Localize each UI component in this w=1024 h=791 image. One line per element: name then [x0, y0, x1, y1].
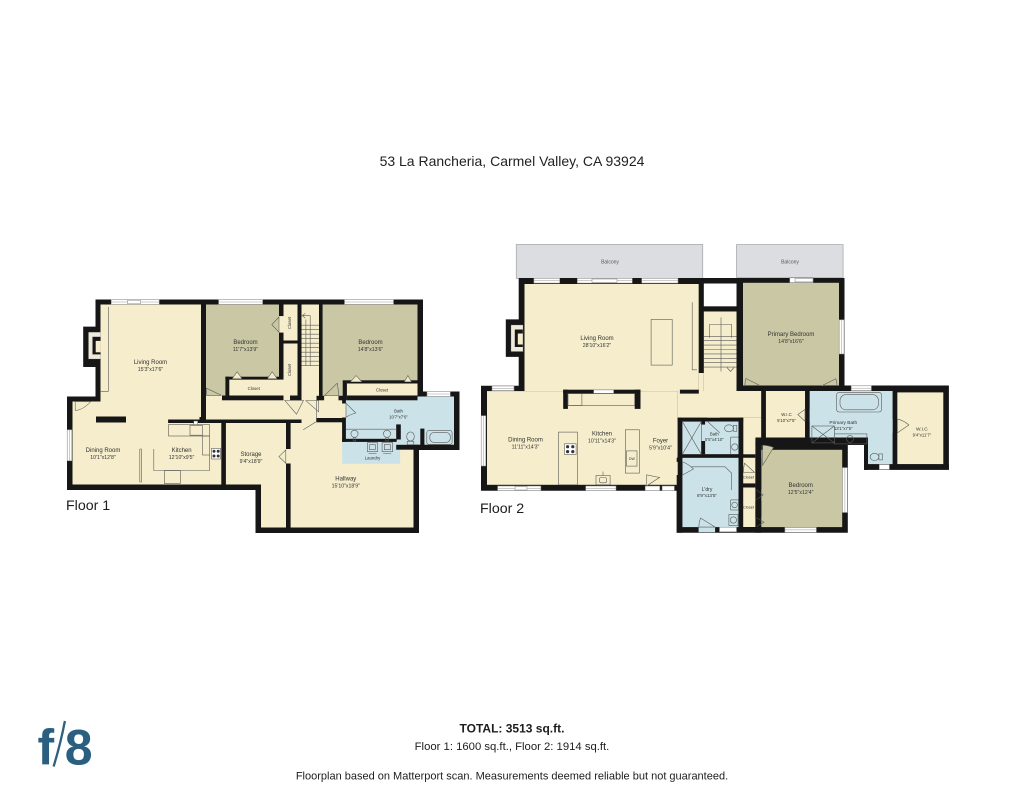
svg-text:Bath: Bath	[710, 432, 719, 437]
svg-text:Closet: Closet	[248, 386, 261, 391]
svg-text:5'10"x7'5": 5'10"x7'5"	[777, 418, 796, 423]
svg-text:Closet: Closet	[287, 316, 292, 329]
svg-text:W.I.C: W.I.C	[781, 412, 792, 417]
svg-text:12'5"x12'4": 12'5"x12'4"	[788, 490, 814, 496]
svg-text:14'8"x16'6": 14'8"x16'6"	[778, 339, 804, 345]
svg-text:11'7"x13'9": 11'7"x13'9"	[233, 347, 258, 353]
svg-text:Closet: Closet	[743, 505, 755, 510]
svg-text:Bedroom: Bedroom	[358, 340, 382, 346]
svg-text:f: f	[38, 720, 55, 776]
svg-text:10'11"x14'3": 10'11"x14'3"	[588, 439, 616, 445]
svg-text:TOTAL: 3513 sq.ft.: TOTAL: 3513 sq.ft.	[460, 722, 565, 736]
svg-text:Floor 2: Floor 2	[480, 501, 524, 517]
svg-text:Foyer: Foyer	[653, 439, 668, 445]
svg-text:Living Room: Living Room	[580, 336, 613, 342]
svg-text:Hallway: Hallway	[335, 477, 356, 483]
svg-text:5'5"x4'10": 5'5"x4'10"	[705, 437, 724, 442]
svg-text:15'10"x18'9": 15'10"x18'9"	[332, 484, 361, 490]
svg-text:10'1"x12'8": 10'1"x12'8"	[90, 455, 116, 461]
svg-text:Storage: Storage	[240, 452, 262, 458]
svg-text:10'7"x7'6": 10'7"x7'6"	[389, 415, 408, 420]
svg-text:Balcony: Balcony	[781, 260, 799, 266]
svg-text:8'9"x13'5": 8'9"x13'5"	[697, 493, 717, 498]
svg-text:5'9"x10'4": 5'9"x10'4"	[649, 446, 672, 452]
svg-text:8: 8	[65, 720, 93, 776]
svg-text:12'10"x9'5": 12'10"x9'5"	[169, 455, 195, 461]
svg-text:Floor 1: Floor 1	[66, 498, 110, 514]
svg-text:Primary Bedroom: Primary Bedroom	[768, 332, 815, 338]
svg-text:Balcony: Balcony	[601, 260, 619, 266]
svg-text:13'1"x7'5": 13'1"x7'5"	[834, 426, 853, 431]
svg-text:Closet: Closet	[287, 363, 292, 376]
svg-text:Floor 1: 1600 sq.ft., Floor 2:: Floor 1: 1600 sq.ft., Floor 2: 1914 sq.f…	[415, 741, 610, 753]
svg-text:Dining Room: Dining Room	[508, 438, 543, 444]
svg-text:Closet: Closet	[376, 388, 389, 393]
svg-text:Kitchen: Kitchen	[172, 448, 192, 454]
svg-text:9'4"x11'7": 9'4"x11'7"	[913, 433, 932, 438]
svg-text:Kitchen: Kitchen	[592, 432, 612, 438]
svg-text:9'4"x18'9": 9'4"x18'9"	[240, 459, 263, 465]
svg-text:Floorplan based on Matterport: Floorplan based on Matterport scan. Meas…	[296, 771, 728, 783]
svg-text:53 La Rancheria, Carmel Valley: 53 La Rancheria, Carmel Valley, CA 93924	[380, 153, 645, 169]
svg-text:15'3"x17'6": 15'3"x17'6"	[138, 367, 164, 373]
svg-text:Laundry: Laundry	[365, 456, 381, 461]
svg-text:Living Room: Living Room	[134, 360, 167, 366]
svg-text:Dining Room: Dining Room	[86, 448, 121, 454]
svg-text:Bedroom: Bedroom	[233, 340, 257, 346]
svg-text:Bath: Bath	[394, 409, 403, 414]
svg-text:DW: DW	[629, 457, 636, 461]
svg-text:28'10"x16'2": 28'10"x16'2"	[583, 343, 612, 349]
svg-text:11'11"x14'3": 11'11"x14'3"	[512, 445, 540, 451]
svg-text:Closet: Closet	[743, 475, 755, 480]
svg-text:Bedroom: Bedroom	[789, 483, 813, 489]
svg-text:14'8"x13'6": 14'8"x13'6"	[358, 347, 384, 353]
